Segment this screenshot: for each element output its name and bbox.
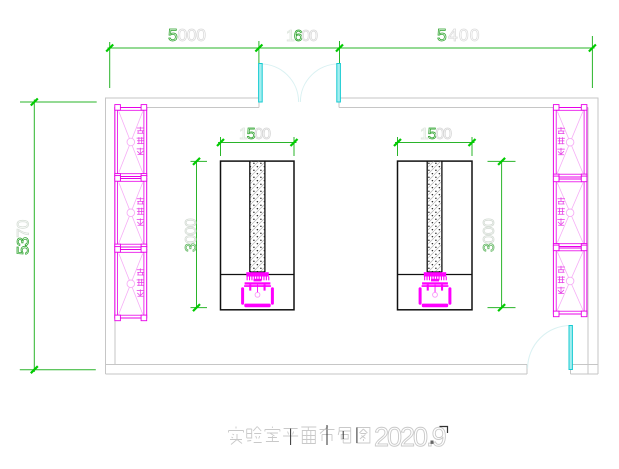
svg-text:1500: 1500 [420, 126, 452, 143]
svg-text:3000: 3000 [183, 218, 200, 252]
svg-text:5400: 5400 [437, 25, 481, 45]
svg-text:1600: 1600 [286, 28, 318, 45]
svg-text:3000: 3000 [481, 218, 498, 252]
svg-text:5370: 5370 [14, 220, 33, 255]
svg-text:5000: 5000 [168, 25, 206, 45]
svg-text:1500: 1500 [239, 126, 271, 143]
svg-text:2020.9: 2020.9 [374, 422, 446, 452]
